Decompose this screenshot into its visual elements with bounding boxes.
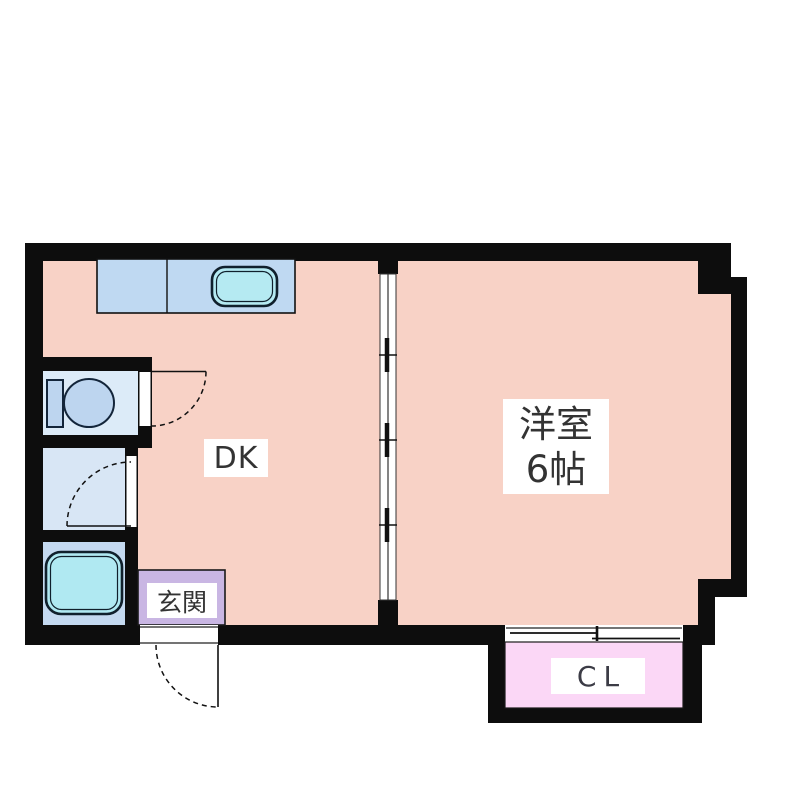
- wall-bottom-mid: [218, 625, 505, 645]
- living-room-label-name: 洋室: [519, 402, 593, 447]
- dk-room-label: DK: [204, 439, 268, 477]
- entrance-threshold: [140, 625, 218, 645]
- wall-washroom-bottom: [25, 530, 138, 542]
- toilet-bowl: [64, 379, 114, 427]
- entrance-door-arc: [156, 645, 218, 707]
- floorplan-drawing: [0, 0, 800, 800]
- wall-closet-bottom: [488, 708, 702, 723]
- floorplan-canvas: DK 洋室 6帖 玄関 CL: [0, 0, 800, 800]
- entrance-door-swing-icon: [140, 625, 218, 707]
- toilet-icon: [47, 379, 114, 427]
- wall-bottom-left: [25, 625, 140, 645]
- wall-toilet-bottom: [25, 435, 152, 448]
- bathtub-outer: [46, 552, 122, 614]
- wall-toilet-top: [25, 357, 152, 371]
- bathtub-icon: [46, 552, 122, 614]
- living-room-label-size: 6帖: [526, 447, 587, 492]
- toilet-door-opening: [140, 372, 151, 426]
- wall-right: [731, 277, 747, 597]
- wall-divider-top-stub: [378, 261, 398, 274]
- closet-sliding-door-icon: [505, 626, 683, 641]
- toilet-tank: [47, 380, 63, 427]
- kitchen-counter: [97, 259, 295, 313]
- wall-bathroom-right: [125, 530, 138, 645]
- closet-label: CL: [551, 658, 645, 694]
- wall-divider-bottom-stub: [378, 600, 398, 625]
- washroom-floor: [43, 448, 125, 530]
- entrance-label: 玄関: [147, 583, 217, 618]
- washroom-door-opening: [127, 456, 137, 527]
- sliding-door-icon: [379, 274, 397, 600]
- living-room-label: 洋室 6帖: [503, 399, 609, 494]
